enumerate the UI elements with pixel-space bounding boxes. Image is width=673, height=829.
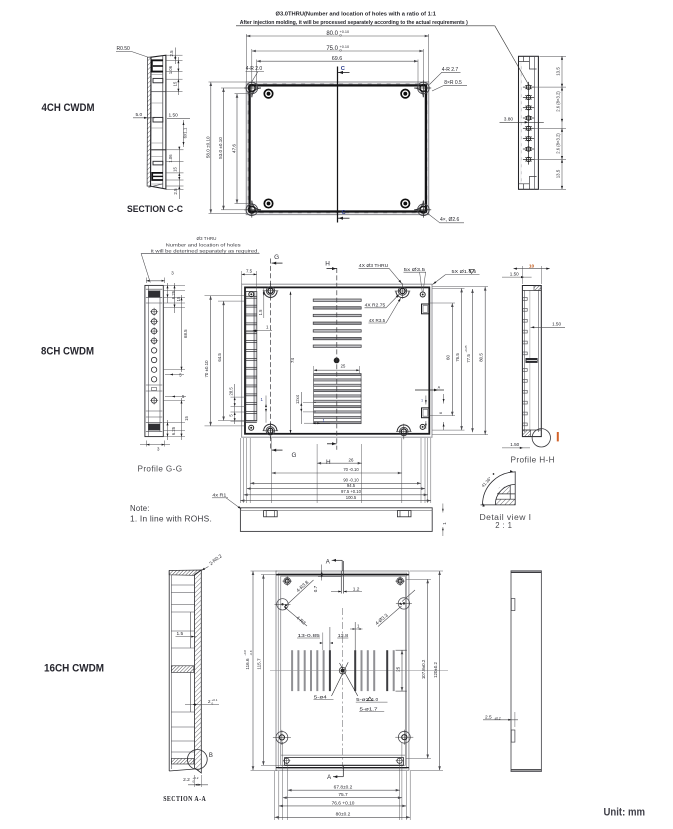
svg-text:94.5: 94.5 xyxy=(347,483,356,488)
svg-text:+0.8: +0.8 xyxy=(243,650,247,656)
svg-text:97.5 +0.10: 97.5 +0.10 xyxy=(341,489,362,494)
svg-text:-0.8: -0.8 xyxy=(249,650,253,655)
svg-text:1.06: 1.06 xyxy=(168,154,173,163)
svg-text:6: 6 xyxy=(439,412,443,414)
svg-text:116.6: 116.6 xyxy=(245,658,250,670)
svg-text:1.50: 1.50 xyxy=(169,113,179,119)
svg-text:5X Ø1.6: 5X Ø1.6 xyxy=(452,269,472,275)
svg-text:4CH CWDM: 4CH CWDM xyxy=(42,102,95,114)
svg-text:+0.25: +0.25 xyxy=(464,345,468,353)
svg-text:15: 15 xyxy=(176,296,181,301)
svg-text:90 -0.10: 90 -0.10 xyxy=(343,478,359,483)
svg-text:25: 25 xyxy=(396,666,401,671)
svg-text:75.0: 75.0 xyxy=(326,46,338,52)
svg-text:G: G xyxy=(274,254,279,261)
svg-text:1.5: 1.5 xyxy=(258,309,263,315)
svg-text:16CH CWDM: 16CH CWDM xyxy=(44,663,104,675)
svg-text:H: H xyxy=(325,260,330,267)
svg-text:G: G xyxy=(292,452,297,459)
svg-text:2: 2 xyxy=(208,699,211,705)
svg-text:76.5: 76.5 xyxy=(455,353,460,362)
svg-text:12x4: 12x4 xyxy=(295,394,300,404)
svg-text:2.5: 2.5 xyxy=(485,714,492,720)
svg-text:2.6 (8×3.2): 2.6 (8×3.2) xyxy=(556,91,561,112)
svg-text:1.5: 1.5 xyxy=(177,631,184,637)
svg-text:A: A xyxy=(327,775,331,781)
svg-text:2.2: 2.2 xyxy=(183,777,190,783)
svg-text:13.5: 13.5 xyxy=(556,169,561,178)
svg-text:47.6: 47.6 xyxy=(232,144,237,153)
svg-text:Profile H-H: Profile H-H xyxy=(511,455,556,465)
svg-text:75.7: 75.7 xyxy=(338,792,348,798)
svg-text:1. In line with ROHS.: 1. In line with ROHS. xyxy=(130,514,212,523)
svg-text:After injection molding, it wi: After injection molding, it will be proc… xyxy=(240,20,468,26)
svg-text:1.06: 1.06 xyxy=(168,65,173,74)
svg-text:67.8±0.2: 67.8±0.2 xyxy=(334,785,353,791)
svg-text:70 ±0.10: 70 ±0.10 xyxy=(204,360,209,378)
svg-text:70 -0.10: 70 -0.10 xyxy=(343,467,359,472)
svg-text:115.7: 115.7 xyxy=(257,658,262,670)
svg-text:15: 15 xyxy=(184,416,189,421)
svg-text:3.80: 3.80 xyxy=(504,117,514,123)
svg-text:0.7: 0.7 xyxy=(313,585,318,592)
svg-text:80.5: 80.5 xyxy=(479,353,484,362)
svg-text:69.6: 69.6 xyxy=(332,56,343,62)
svg-text:SECTION C-C: SECTION C-C xyxy=(127,204,183,214)
svg-text:107.8±0.2: 107.8±0.2 xyxy=(421,659,426,679)
svg-text:5.0: 5.0 xyxy=(136,112,143,118)
svg-text:68.5: 68.5 xyxy=(183,329,188,338)
svg-text:2 : 1: 2 : 1 xyxy=(495,521,512,530)
svg-text:15: 15 xyxy=(172,81,177,86)
svg-text:80±0.2: 80±0.2 xyxy=(336,812,351,818)
svg-text:A: A xyxy=(326,559,330,565)
svg-text:53.0 ±0.10: 53.0 ±0.10 xyxy=(218,137,223,159)
svg-text:2.5: 2.5 xyxy=(173,188,178,195)
svg-text:80.0: 80.0 xyxy=(326,31,338,37)
svg-text:1: 1 xyxy=(421,399,423,403)
svg-text:76.6 +0.10: 76.6 +0.10 xyxy=(332,800,355,806)
svg-text:Number and location of holes: Number and location of holes xyxy=(166,242,242,247)
svg-text:Ø3.0THRU(Number and location o: Ø3.0THRU(Number and location of holes wi… xyxy=(276,12,437,18)
svg-text:H: H xyxy=(326,459,331,466)
svg-text:Note:: Note: xyxy=(130,504,150,513)
svg-text:64.5: 64.5 xyxy=(217,353,222,362)
svg-text:Unit: mm: Unit: mm xyxy=(604,806,646,818)
svg-text:1.50: 1.50 xyxy=(510,442,519,447)
svg-text:100.5: 100.5 xyxy=(346,495,357,500)
svg-text:25: 25 xyxy=(341,364,346,369)
svg-text:13.8: 13.8 xyxy=(338,633,349,638)
svg-text:Ø3 THRU: Ø3 THRU xyxy=(197,236,217,241)
svg-text:120±0.2: 120±0.2 xyxy=(433,662,438,678)
svg-text:2.6 (8×3.2): 2.6 (8×3.2) xyxy=(556,133,561,154)
svg-text:0: 0 xyxy=(340,49,342,53)
svg-text:6.25: 6.25 xyxy=(171,426,176,435)
svg-text:28.5: 28.5 xyxy=(229,387,234,396)
svg-text:Profile G-G: Profile G-G xyxy=(138,464,183,474)
svg-text:A: A xyxy=(438,385,441,389)
svg-text:74: 74 xyxy=(290,358,295,364)
svg-text:10: 10 xyxy=(529,263,535,269)
svg-text:15: 15 xyxy=(172,167,177,172)
svg-text:77.5: 77.5 xyxy=(466,354,471,363)
svg-text:2.5: 2.5 xyxy=(169,50,174,57)
svg-text:26: 26 xyxy=(349,457,354,462)
svg-text:1.50: 1.50 xyxy=(510,272,519,277)
svg-text:8CH CWDM: 8CH CWDM xyxy=(41,346,94,358)
svg-text:0: 0 xyxy=(340,34,342,38)
svg-text:13.5: 13.5 xyxy=(556,67,561,76)
svg-text:It will be deterined separatel: It will be deterined separately as requi… xyxy=(151,248,260,253)
svg-text:13-0.85: 13-0.85 xyxy=(298,633,321,638)
svg-text:58.0 ±0.10: 58.0 ±0.10 xyxy=(205,136,210,158)
svg-text:1.50: 1.50 xyxy=(552,322,561,327)
svg-text:SECTION A-A: SECTION A-A xyxy=(163,795,206,803)
svg-text:B: B xyxy=(209,753,213,759)
svg-text:7.5: 7.5 xyxy=(246,268,253,273)
svg-text:60: 60 xyxy=(446,355,451,360)
svg-text:4×, Ø2.6: 4×, Ø2.6 xyxy=(440,217,460,223)
